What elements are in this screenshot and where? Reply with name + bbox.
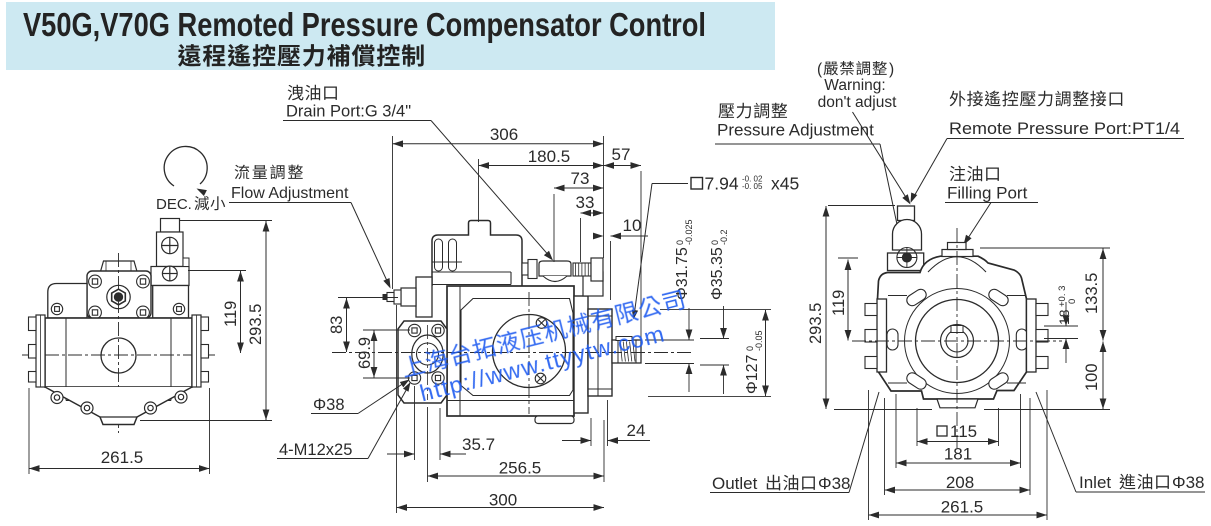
svg-text:293.5: 293.5: [247, 304, 265, 345]
svg-text:73: 73: [571, 169, 590, 188]
svg-text:(: (: [817, 61, 823, 78]
svg-text:DEC.: DEC.: [156, 196, 192, 213]
svg-text:180.5: 180.5: [528, 147, 571, 166]
svg-text:261.5: 261.5: [101, 448, 144, 467]
svg-text:Flow Adjustment: Flow Adjustment: [231, 185, 349, 202]
svg-text:Φ38: Φ38: [313, 396, 345, 414]
svg-text:7.94: 7.94: [705, 174, 739, 194]
svg-text:18: 18: [1056, 309, 1072, 325]
svg-text:181: 181: [944, 445, 972, 464]
svg-text:256.5: 256.5: [499, 459, 542, 478]
svg-text:Φ127: Φ127: [744, 354, 761, 394]
svg-text:33: 33: [576, 193, 595, 212]
svg-text:261.5: 261.5: [941, 498, 984, 517]
svg-text:293.5: 293.5: [807, 303, 825, 344]
svg-text:35.7: 35.7: [462, 435, 495, 454]
svg-text:-0.05: -0.05: [754, 330, 764, 351]
svg-text:-0.025: -0.025: [684, 219, 694, 245]
svg-text:24: 24: [627, 421, 646, 440]
svg-text:don't adjust: don't adjust: [818, 94, 897, 111]
svg-text:83: 83: [328, 316, 346, 334]
svg-text:Φ35.35: Φ35.35: [709, 247, 726, 300]
svg-text:Warning:: Warning:: [824, 77, 885, 94]
svg-text:69.9: 69.9: [356, 337, 374, 369]
svg-text:306: 306: [490, 125, 518, 144]
svg-text:): ): [889, 61, 894, 78]
svg-text:208: 208: [946, 473, 974, 492]
svg-text:133.5: 133.5: [1083, 273, 1101, 314]
svg-text:-0.2: -0.2: [719, 229, 729, 245]
svg-text:Drain Port:G 3/4": Drain Port:G 3/4": [286, 103, 411, 121]
svg-text:100: 100: [1083, 363, 1101, 391]
svg-text:Filling Port: Filling Port: [947, 184, 1028, 203]
svg-text:115: 115: [950, 422, 977, 441]
svg-text:Remote Pressure Port:PT1/4: Remote Pressure Port:PT1/4: [949, 119, 1180, 138]
svg-text:x45: x45: [771, 174, 799, 194]
svg-text:V50G,V70G Remoted Pressure Com: V50G,V70G Remoted Pressure Compensator C…: [23, 6, 706, 43]
svg-text:4-M12x25: 4-M12x25: [279, 441, 352, 459]
svg-text:10: 10: [623, 216, 642, 235]
svg-text:119: 119: [830, 290, 848, 316]
svg-text:Φ38: Φ38: [818, 474, 850, 493]
svg-text:Pressure Adjustment: Pressure Adjustment: [717, 121, 874, 140]
svg-text:-0. 05: -0. 05: [742, 182, 763, 191]
svg-text:119: 119: [222, 301, 240, 327]
svg-text:Inlet: Inlet: [1079, 473, 1111, 492]
svg-text:Φ38: Φ38: [1172, 473, 1204, 492]
svg-text:300: 300: [489, 491, 517, 510]
svg-text:57: 57: [612, 145, 631, 164]
svg-text:Outlet: Outlet: [712, 474, 758, 493]
svg-text:0: 0: [1067, 299, 1078, 304]
